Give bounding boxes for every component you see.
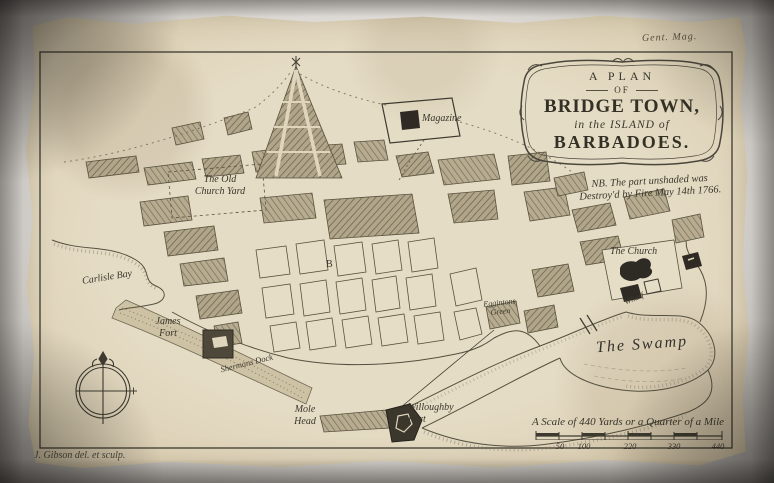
label-old-church-yard-line2: Church Yard: [174, 186, 266, 198]
title-rule-right: [636, 90, 658, 91]
title-cartouche: A PLAN OF BRIDGE TOWN, in the ISLAND of …: [516, 56, 728, 170]
map-paper-sheet: A PLAN OF BRIDGE TOWN, in the ISLAND of …: [24, 12, 750, 470]
north-road-wedge: [256, 56, 342, 178]
label-reference-letter-b: B: [326, 259, 333, 271]
publication-mark: Gent. Mag.: [642, 31, 698, 44]
scale-bar-title: A Scale of 440 Yards or a Quarter of a M…: [524, 416, 732, 429]
label-old-church-yard-line1: The Old: [174, 174, 266, 186]
compass-rose: [76, 352, 137, 424]
map-title-line3: BRIDGE TOWN,: [516, 96, 728, 118]
mole-head-pier: [320, 410, 390, 432]
label-james-fort-line1: James: [142, 316, 194, 328]
map-title-line1: A PLAN: [516, 69, 728, 84]
label-willoughby-fort-line1: Willoughby: [408, 402, 454, 414]
label-old-church-yard: The Old Church Yard: [174, 174, 266, 197]
james-fort: [203, 330, 233, 358]
label-mole-head: Mole Head: [284, 404, 326, 427]
scale-tick-50: 50: [548, 441, 572, 451]
map-title-line4: in the ISLAND of: [516, 119, 728, 131]
map-title-line2: OF: [614, 85, 630, 95]
scale-tick-220: 220: [618, 441, 642, 451]
label-mole-head-line2: Head: [284, 416, 326, 428]
title-rule-left: [586, 90, 608, 91]
label-james-fort: James Fort: [142, 316, 194, 339]
engraver-signature: J. Gibson del. et sculp.: [34, 450, 125, 462]
map-title-line5: BARBADOES.: [516, 132, 728, 153]
label-the-church: The Church: [610, 246, 657, 258]
label-magazine: Magazine: [422, 113, 461, 125]
label-james-fort-line2: Fort: [142, 328, 194, 340]
swamp-texture: [584, 364, 686, 382]
label-willoughby-fort: Willoughby Fort: [408, 402, 454, 425]
scale-tick-330: 330: [662, 441, 686, 451]
map-title-line2-row: OF: [516, 85, 728, 95]
label-mole-head-line1: Mole: [284, 404, 326, 416]
label-willoughby-fort-line2: Fort: [408, 414, 454, 426]
scanned-map-page: A PLAN OF BRIDGE TOWN, in the ISLAND of …: [0, 0, 774, 483]
scale-tick-440: 440: [706, 441, 730, 451]
scale-tick-100: 100: [572, 441, 596, 451]
